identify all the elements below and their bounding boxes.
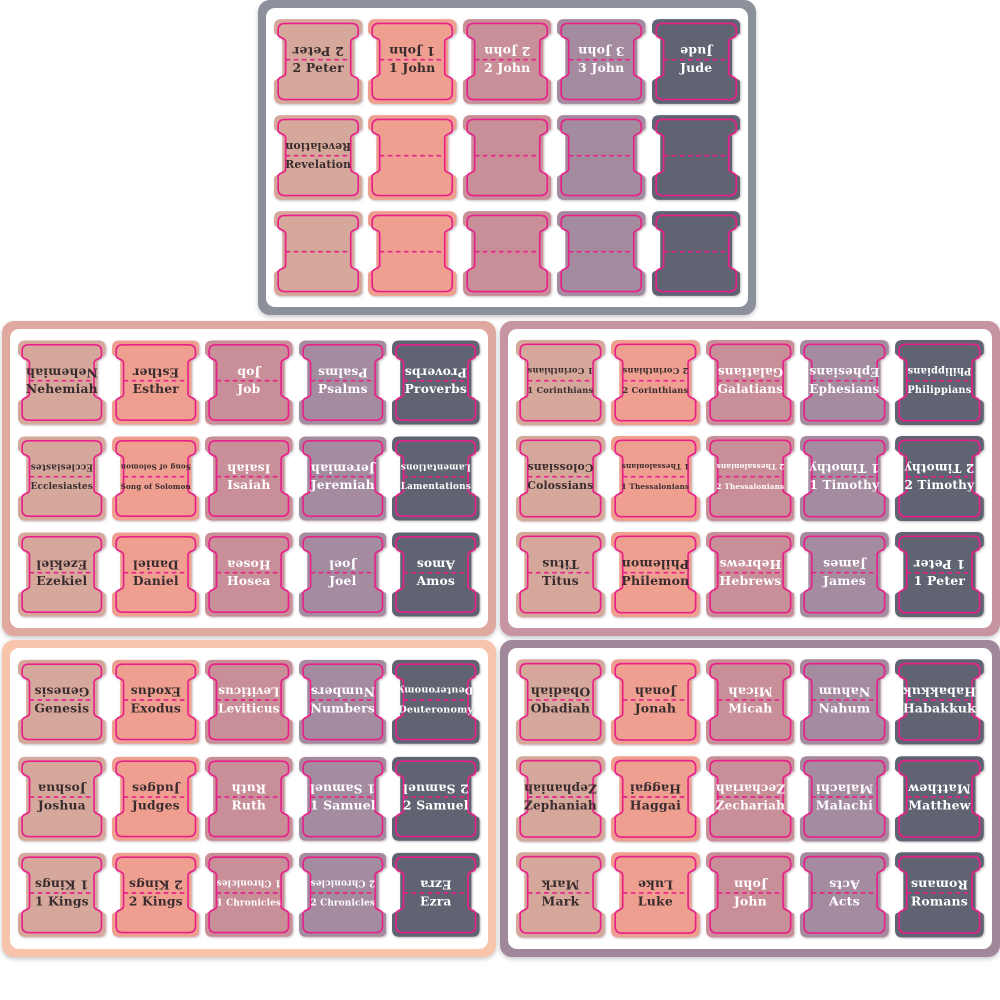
tab-jonah: JonahJonah — [611, 656, 700, 748]
tab-mark: MarkMark — [516, 849, 605, 941]
tab-label-mirrored: Habakkuk — [903, 684, 976, 699]
tab-blank — [274, 208, 362, 299]
tab-label-mirrored: Zechariah — [715, 781, 784, 795]
sticker-sheet-panel-bottom-right: ObadiahObadiahJonahJonahMicahMicahNahumN… — [500, 640, 1000, 957]
tab-label-mirrored: Titus — [542, 557, 579, 572]
tab-label-mirrored: 2 John — [484, 44, 530, 59]
tab-label: Galatians — [717, 382, 783, 396]
tab-label-mirrored: 2 Samuel — [403, 781, 469, 796]
tab-label-mirrored: Ezekiel — [36, 557, 87, 572]
tab-nahum: NahumNahum — [800, 656, 889, 748]
tab-revelation: RevelationRevelation — [274, 112, 362, 203]
tab-label-mirrored: 1 Samuel — [310, 781, 376, 796]
tab-label-mirrored: James — [823, 557, 867, 572]
tab-judges: JudgesJudges — [112, 753, 200, 845]
tab-label-mirrored: Joshua — [38, 781, 87, 796]
tab-label-mirrored: Leviticus — [218, 685, 280, 699]
tab-3-john: 3 John3 John — [557, 16, 645, 107]
tab-label: Song of Solomon — [120, 482, 190, 491]
tab-label-mirrored: Philippians — [907, 365, 971, 376]
tab-label-mirrored: Psalms — [318, 365, 368, 380]
tab-label-mirrored: Haggai — [630, 781, 681, 796]
tab-2-john: 2 John2 John — [463, 16, 551, 107]
tab-label: Isaiah — [227, 477, 270, 492]
tab-label: Ezekiel — [36, 573, 87, 588]
tab-label-mirrored: 2 Kings — [128, 878, 182, 893]
tab-1-samuel: 1 Samuel1 Samuel — [299, 753, 387, 845]
tab-label-mirrored: Obadiah — [531, 684, 591, 699]
tab-label-mirrored: Malachi — [816, 781, 873, 796]
tab-label: 1 Peter — [914, 573, 966, 588]
tab-label-mirrored: 2 Corinthians — [622, 366, 688, 376]
tab-joel: JoelJoel — [299, 529, 387, 620]
tab-john: JohnJohn — [706, 849, 795, 941]
tab-label-mirrored: Philemon — [621, 557, 689, 572]
tab-label: Ephesians — [810, 382, 880, 396]
tab-label-mirrored: Proverbs — [405, 365, 467, 380]
tab-acts: ActsActs — [800, 849, 889, 941]
tab-1-peter: 1 Peter1 Peter — [895, 529, 984, 620]
tab-blank — [368, 208, 456, 299]
tab-label-mirrored: 1 Corinthians — [527, 366, 593, 376]
tab-job: JobJob — [205, 337, 293, 428]
tab-blank — [368, 112, 456, 203]
tab-isaiah: IsaiahIsaiah — [205, 433, 293, 524]
tab-label: Exodus — [130, 700, 180, 715]
tab-label-mirrored: Amos — [417, 557, 456, 572]
tab-label: Hosea — [227, 573, 271, 588]
tab-1-corinthians: 1 Corinthians1 Corinthians — [516, 337, 605, 428]
tab-label: Hebrews — [719, 573, 781, 588]
tab-label-mirrored: Job — [237, 365, 261, 380]
tab-label: Jude — [679, 60, 712, 75]
tab-romans: RomansRomans — [895, 849, 984, 941]
tab-2-thessalonians: 2 Thessalonians2 Thessalonians — [706, 433, 795, 524]
tab-label: 2 Chronicles — [310, 899, 375, 909]
tab-label: Nahum — [819, 700, 871, 715]
tab-esther: EstherEsther — [112, 337, 200, 428]
tab-label: 2 Kings — [128, 894, 182, 909]
tab-galatians: GalatiansGalatians — [706, 337, 795, 428]
tab-label-mirrored: Luke — [638, 878, 673, 893]
tab-ezra: EzraEzra — [392, 849, 480, 941]
tab-label-mirrored: Colossians — [527, 461, 593, 474]
tab-daniel: DanielDaniel — [112, 529, 200, 620]
tab-label-mirrored: Romans — [911, 878, 968, 893]
tab-label-mirrored: Mark — [541, 878, 579, 893]
tab-label-mirrored: Exodus — [130, 685, 180, 700]
tab-2-chronicles: 2 Chronicles2 Chronicles — [299, 849, 387, 941]
tab-label: Ecclesiastes — [31, 482, 93, 492]
tab-label: 1 Thessalonians — [621, 482, 689, 491]
tab-label-mirrored: 1 Kings — [35, 878, 89, 893]
tab-titus: TitusTitus — [516, 529, 605, 620]
tab-label: Matthew — [908, 797, 971, 812]
tab-label: Proverbs — [405, 381, 467, 396]
tab-label-mirrored: John — [733, 878, 767, 893]
tab-label-mirrored: Zephaniah — [524, 781, 597, 795]
tab-proverbs: ProverbsProverbs — [392, 337, 480, 428]
tab-label-mirrored: Joel — [329, 557, 357, 572]
tab-label-mirrored: Hebrews — [719, 557, 781, 572]
tab-label-mirrored: Micah — [728, 684, 772, 699]
tab-label: Zephaniah — [524, 798, 597, 812]
tab-label: James — [822, 573, 866, 588]
tab-blank — [557, 112, 645, 203]
tab-label: Titus — [542, 573, 579, 588]
tab-label: 2 Thessalonians — [716, 482, 784, 491]
tab-label: Ezra — [420, 894, 452, 909]
tab-label-mirrored: Nahum — [819, 684, 871, 699]
tab-label-mirrored: Song of Solomon — [120, 462, 190, 471]
tab-label-mirrored: 2 Thessalonians — [716, 462, 784, 471]
sticker-sheet: GenesisGenesisExodusExodusLeviticusLevit… — [10, 648, 488, 949]
tab-label-mirrored: Genesis — [34, 685, 89, 700]
tab-hebrews: HebrewsHebrews — [706, 529, 795, 620]
tab-label-mirrored: Matthew — [908, 781, 971, 796]
tab-label: Judges — [130, 797, 179, 812]
tab-label-mirrored: Deuteronomy — [398, 685, 473, 696]
tab-label-mirrored: 1 Thessalonians — [621, 462, 689, 471]
tab-label-mirrored: 2 Timothy — [904, 461, 975, 475]
tab-label-mirrored: 3 John — [578, 44, 624, 59]
tab-label: Obadiah — [531, 700, 591, 715]
tab-1-john: 1 John1 John — [368, 16, 456, 107]
sticker-sheet: ObadiahObadiahJonahJonahMicahMicahNahumN… — [508, 648, 992, 949]
tab-label-mirrored: 1 Chronicles — [217, 878, 282, 888]
tab-habakkuk: HabakkukHabakkuk — [895, 656, 984, 748]
tab-psalms: PsalmsPsalms — [299, 337, 387, 428]
tab-blank — [557, 208, 645, 299]
tab-2-corinthians: 2 Corinthians2 Corinthians — [611, 337, 700, 428]
tab-label-mirrored: 2 Peter — [292, 44, 344, 59]
tab-label: 1 Samuel — [310, 797, 376, 812]
tab-numbers: NumbersNumbers — [299, 656, 387, 748]
sticker-sheet-panel-middle-right: 1 Corinthians1 Corinthians2 Corinthians2… — [500, 321, 1000, 636]
tab-label: John — [732, 894, 766, 909]
tab-label: 2 Timothy — [905, 478, 976, 492]
tab-label-mirrored: Daniel — [132, 557, 178, 572]
tab-philemon: PhilemonPhilemon — [611, 529, 700, 620]
tab-label-mirrored: Nehemiah — [26, 365, 98, 380]
tab-james: JamesJames — [800, 529, 889, 620]
tab-label: Philippians — [908, 385, 972, 396]
tab-label-mirrored: Judges — [131, 781, 180, 796]
tab-label-mirrored: 1 Peter — [914, 557, 966, 572]
tab-label: Nehemiah — [26, 381, 98, 396]
tab-leviticus: LeviticusLeviticus — [205, 656, 293, 748]
tab-philippians: PhilippiansPhilippians — [895, 337, 984, 428]
tab-label: Esther — [132, 381, 179, 396]
tab-label: Revelation — [285, 158, 351, 171]
tab-blank — [652, 208, 740, 299]
tab-label-mirrored: Galatians — [717, 365, 783, 379]
tab-label-mirrored: 1 John — [389, 44, 435, 59]
tab-jude: JudeJude — [652, 16, 740, 107]
tab-label: Malachi — [816, 797, 873, 812]
tab-ecclesiastes: EcclesiastesEcclesiastes — [18, 433, 106, 524]
tab-label: Habakkuk — [903, 700, 976, 715]
tab-lamentations: LamentationsLamentations — [392, 433, 480, 524]
tab-zephaniah: ZephaniahZephaniah — [516, 753, 605, 845]
tab-label: Psalms — [318, 381, 368, 396]
tab-label: Acts — [828, 894, 860, 909]
tab-label-mirrored: 1 Timothy — [809, 461, 880, 475]
tab-zechariah: ZechariahZechariah — [706, 753, 795, 845]
tab-label-mirrored: Acts — [829, 878, 861, 893]
tab-label: Haggai — [630, 797, 681, 812]
tab-label-mirrored: Lamentations — [401, 461, 471, 471]
tab-label: Jonah — [634, 700, 676, 715]
tab-label-mirrored: Jude — [680, 44, 713, 59]
sticker-sheet: NehemiahNehemiahEstherEstherJobJobPsalms… — [10, 329, 488, 628]
tab-label: 2 Samuel — [403, 797, 469, 812]
tab-colossians: ColossiansColossians — [516, 433, 605, 524]
tab-1-chronicles: 1 Chronicles1 Chronicles — [205, 849, 293, 941]
tab-2-peter: 2 Peter2 Peter — [274, 16, 362, 107]
tab-label-mirrored: Jeremiah — [311, 461, 376, 476]
tab-joshua: JoshuaJoshua — [18, 753, 106, 845]
tab-label: 2 Corinthians — [622, 385, 688, 395]
tab-label-mirrored: Ecclesiastes — [31, 461, 93, 471]
tab-obadiah: ObadiahObadiah — [516, 656, 605, 748]
tab-label-mirrored: Ephesians — [810, 365, 880, 379]
sticker-sheet-panel-top-center: 2 Peter2 Peter1 John1 John2 John2 John3 … — [258, 0, 756, 315]
tab-song-of-solomon: Song of SolomonSong of Solomon — [112, 433, 200, 524]
sticker-sheet: 1 Corinthians1 Corinthians2 Corinthians2… — [508, 329, 992, 628]
sticker-sheet-panel-bottom-left: GenesisGenesisExodusExodusLeviticusLevit… — [2, 640, 496, 957]
tab-label: Jeremiah — [310, 477, 375, 492]
tab-amos: AmosAmos — [392, 529, 480, 620]
tab-label: Philemon — [621, 573, 689, 588]
tab-label: Lamentations — [401, 482, 471, 492]
tab-nehemiah: NehemiahNehemiah — [18, 337, 106, 428]
tab-2-samuel: 2 Samuel2 Samuel — [392, 753, 480, 845]
tab-1-thessalonians: 1 Thessalonians1 Thessalonians — [611, 433, 700, 524]
tab-genesis: GenesisGenesis — [18, 656, 106, 748]
tab-label: Leviticus — [218, 701, 280, 715]
tab-ephesians: EphesiansEphesians — [800, 337, 889, 428]
tab-micah: MicahMicah — [706, 656, 795, 748]
tab-label: 2 Peter — [293, 60, 345, 75]
tab-label: 3 John — [578, 60, 624, 75]
tab-label: Job — [236, 381, 260, 396]
tab-label: 1 John — [389, 60, 435, 75]
tab-label-mirrored: Ruth — [232, 781, 267, 796]
sticker-sheet: 2 Peter2 Peter1 John1 John2 John2 John3 … — [266, 8, 748, 307]
tab-label: 1 Chronicles — [217, 899, 282, 909]
tab-malachi: MalachiMalachi — [800, 753, 889, 845]
tab-label-mirrored: Ezra — [420, 878, 452, 893]
tab-label: Colossians — [527, 479, 593, 492]
tab-label: Ruth — [232, 797, 267, 812]
tab-label-mirrored: Revelation — [285, 140, 351, 153]
tab-label: Numbers — [310, 700, 374, 715]
tab-label: 1 Timothy — [810, 478, 881, 492]
tab-ezekiel: EzekielEzekiel — [18, 529, 106, 620]
tab-haggai: HaggaiHaggai — [611, 753, 700, 845]
tab-2-kings: 2 Kings2 Kings — [112, 849, 200, 941]
tab-label: Daniel — [132, 573, 178, 588]
tab-label-mirrored: 2 Chronicles — [310, 878, 375, 888]
tab-label-mirrored: Isaiah — [227, 461, 270, 476]
tab-1-kings: 1 Kings1 Kings — [18, 849, 106, 941]
tab-label: 2 John — [484, 60, 530, 75]
tab-label-mirrored: Numbers — [310, 685, 374, 700]
tab-jeremiah: JeremiahJeremiah — [299, 433, 387, 524]
tab-label: Mark — [541, 894, 579, 909]
tab-label: Genesis — [34, 700, 89, 715]
tab-label: Deuteronomy — [399, 704, 474, 715]
tab-label: Luke — [638, 894, 673, 909]
tab-1-timothy: 1 Timothy1 Timothy — [800, 433, 889, 524]
tab-blank — [463, 208, 551, 299]
tab-label: Amos — [416, 573, 455, 588]
tab-label-mirrored: Jonah — [635, 684, 677, 699]
tab-label: Micah — [728, 700, 772, 715]
tab-deuteronomy: DeuteronomyDeuteronomy — [392, 656, 480, 748]
tab-hosea: HoseaHosea — [205, 529, 293, 620]
tab-label: 1 Kings — [35, 894, 89, 909]
tab-label-mirrored: Hosea — [227, 557, 271, 572]
tab-label: Joel — [328, 573, 356, 588]
tab-label-mirrored: Esther — [132, 365, 179, 380]
bible-tabs-collage: 2 Peter2 Peter1 John1 John2 John2 John3 … — [0, 0, 1000, 1000]
tab-luke: LukeLuke — [611, 849, 700, 941]
tab-blank — [652, 112, 740, 203]
tab-label: Joshua — [37, 797, 86, 812]
tab-blank — [463, 112, 551, 203]
tab-label: Romans — [911, 894, 968, 909]
sticker-sheet-panel-middle-left: NehemiahNehemiahEstherEstherJobJobPsalms… — [2, 321, 496, 636]
tab-label: 1 Corinthians — [527, 385, 593, 395]
tab-exodus: ExodusExodus — [112, 656, 200, 748]
tab-matthew: MatthewMatthew — [895, 753, 984, 845]
tab-label: Zechariah — [715, 798, 784, 812]
tab-2-timothy: 2 Timothy2 Timothy — [895, 433, 984, 524]
tab-ruth: RuthRuth — [205, 753, 293, 845]
